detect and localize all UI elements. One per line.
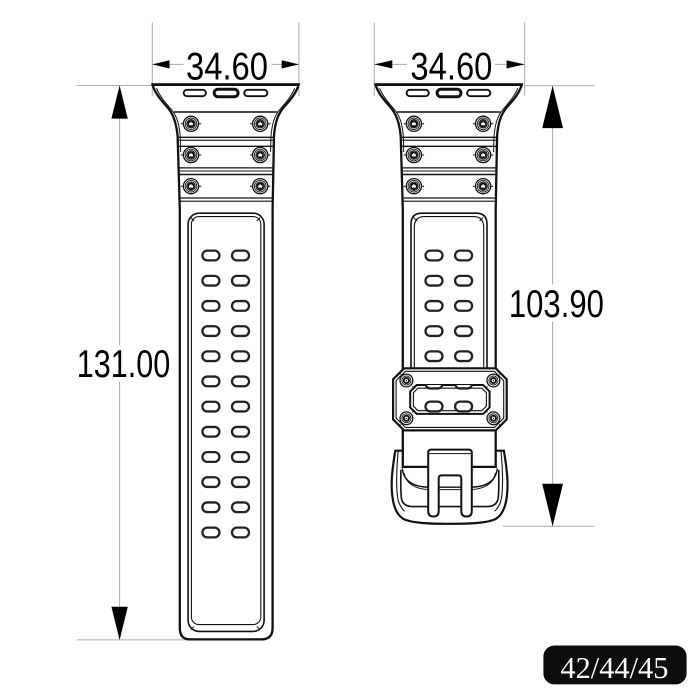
svg-text:131.00: 131.00 (77, 343, 171, 386)
svg-text:34.60: 34.60 (410, 46, 492, 89)
svg-text:42/44/45: 42/44/45 (560, 650, 668, 685)
svg-text:34.60: 34.60 (186, 46, 268, 89)
svg-text:103.90: 103.90 (509, 283, 604, 326)
